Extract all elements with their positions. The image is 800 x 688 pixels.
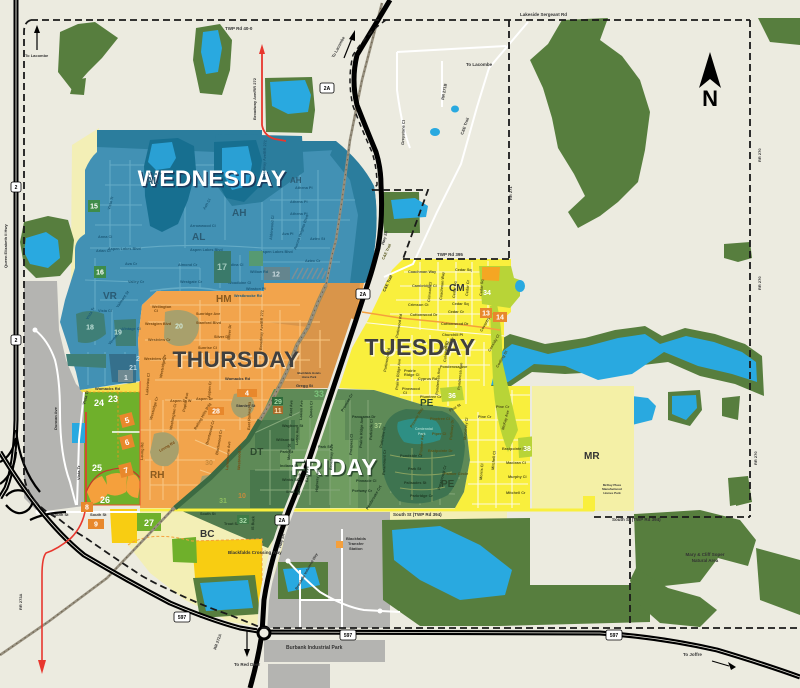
svg-text:Womacks Rd: Womacks Rd — [225, 376, 251, 381]
svg-text:Pine Cr: Pine Cr — [478, 415, 492, 419]
svg-text:15: 15 — [90, 204, 98, 211]
svg-text:AH: AH — [290, 176, 302, 185]
svg-text:Sunridge Ave: Sunridge Ave — [196, 312, 220, 316]
svg-text:Willow Rd: Willow Rd — [250, 270, 269, 274]
svg-text:Moore St: Moore St — [287, 443, 292, 460]
svg-text:Westbrooke Rd: Westbrooke Rd — [234, 294, 262, 298]
svg-text:Murphy Cl: Murphy Cl — [508, 475, 527, 479]
svg-text:Cyprus Rd: Cyprus Rd — [418, 377, 438, 381]
svg-text:34: 34 — [483, 290, 491, 297]
svg-text:Portway Cr: Portway Cr — [352, 489, 373, 493]
svg-text:18: 18 — [86, 325, 94, 332]
svg-text:24: 24 — [94, 398, 104, 408]
svg-text:Woodbine Cl: Woodbine Cl — [228, 281, 251, 285]
svg-text:Piper Cl: Piper Cl — [432, 432, 446, 436]
svg-text:To Red Deer: To Red Deer — [234, 662, 260, 667]
svg-text:10: 10 — [238, 493, 246, 500]
svg-text:HM: HM — [216, 294, 232, 305]
svg-text:Vista Cl: Vista Cl — [98, 309, 112, 313]
svg-text:Home Park: Home Park — [302, 375, 317, 379]
svg-text:AL: AL — [192, 232, 205, 243]
svg-text:2A: 2A — [324, 86, 331, 92]
svg-text:Indiana St: Indiana St — [280, 464, 299, 468]
svg-text:Womacks Rd: Womacks Rd — [95, 386, 121, 391]
svg-text:Churchill Pl: Churchill Pl — [442, 333, 463, 337]
svg-text:South St: South St — [200, 512, 216, 516]
svg-text:Stanford Blvd: Stanford Blvd — [196, 321, 222, 325]
svg-text:2A: 2A — [279, 518, 286, 524]
svg-text:DT: DT — [250, 447, 263, 458]
svg-text:Crimson Ct: Crimson Ct — [408, 303, 429, 307]
svg-text:2: 2 — [15, 338, 18, 344]
svg-text:14: 14 — [496, 315, 504, 322]
svg-text:4: 4 — [245, 391, 249, 398]
svg-text:Maclean Cl: Maclean Cl — [506, 461, 526, 465]
svg-text:597: 597 — [344, 633, 353, 639]
svg-text:Westview Cr: Westview Cr — [148, 338, 171, 342]
svg-text:Palisades St: Palisades St — [404, 481, 427, 485]
svg-text:Cedar Cr: Cedar Cr — [448, 310, 465, 314]
svg-text:To Joffre: To Joffre — [683, 652, 702, 657]
svg-text:32: 32 — [239, 518, 247, 525]
svg-text:597: 597 — [610, 633, 619, 639]
svg-text:South St: South St — [52, 512, 69, 517]
svg-text:16: 16 — [96, 270, 104, 277]
svg-text:8: 8 — [85, 505, 89, 512]
svg-text:Arrowwood Cl: Arrowwood Cl — [190, 224, 216, 228]
svg-text:25: 25 — [92, 463, 102, 473]
svg-text:Waghorn St: Waghorn St — [282, 424, 304, 428]
svg-text:AL: AL — [146, 176, 159, 187]
svg-text:East Ave: East Ave — [305, 466, 310, 482]
svg-text:1: 1 — [124, 375, 128, 382]
svg-text:Queen Elizabeth II Hwy: Queen Elizabeth II Hwy — [3, 223, 8, 268]
svg-text:AH: AH — [232, 208, 246, 219]
svg-text:Mitchell Cr: Mitchell Cr — [506, 491, 526, 495]
svg-text:Aspen Lakes Blvd: Aspen Lakes Blvd — [260, 250, 293, 254]
svg-text:2: 2 — [136, 356, 140, 363]
svg-text:19: 19 — [114, 330, 122, 337]
svg-text:RR 270: RR 270 — [757, 276, 762, 290]
svg-text:Ponderosa Ave: Ponderosa Ave — [440, 365, 467, 369]
svg-text:Leung Rd: Leung Rd — [140, 442, 145, 460]
svg-text:Cedar Sq: Cedar Sq — [452, 302, 469, 306]
svg-text:Vintage Cl: Vintage Cl — [122, 327, 141, 331]
svg-text:Coachman Way: Coachman Way — [408, 270, 437, 274]
svg-text:Almond Cr: Almond Cr — [178, 263, 198, 267]
svg-text:Westglen Blvd: Westglen Blvd — [145, 322, 172, 326]
svg-text:Cambridge Cl: Cambridge Cl — [412, 284, 437, 288]
svg-text:RR 271: RR 271 — [508, 186, 513, 200]
svg-text:Westgate Cr: Westgate Cr — [180, 280, 203, 284]
svg-text:Natural Area: Natural Area — [692, 558, 719, 563]
svg-text:597: 597 — [178, 615, 187, 621]
svg-text:PE: PE — [420, 398, 434, 409]
svg-text:37: 37 — [374, 423, 382, 430]
svg-text:2A: 2A — [360, 292, 367, 298]
svg-text:Park St: Park St — [408, 467, 422, 471]
svg-text:Stanley St: Stanley St — [236, 403, 256, 408]
svg-text:IS Buck: IS Buck — [251, 515, 256, 530]
svg-text:9: 9 — [94, 522, 98, 529]
svg-text:38: 38 — [523, 446, 531, 453]
svg-text:Gregg St: Gregg St — [296, 383, 314, 388]
svg-text:Cottonwood Dr: Cottonwood Dr — [441, 322, 469, 326]
svg-text:Anna Cl: Anna Cl — [98, 235, 112, 239]
svg-text:TWP Rd 40-0: TWP Rd 40-0 — [225, 26, 253, 31]
svg-text:Ridge Cl: Ridge Cl — [404, 373, 419, 377]
svg-text:23: 23 — [108, 394, 118, 404]
svg-text:Aztec Cr: Aztec Cr — [305, 259, 321, 263]
svg-text:Trout St: Trout St — [224, 522, 239, 526]
svg-text:TWP Rd 395: TWP Rd 395 — [437, 252, 463, 257]
svg-text:36: 36 — [448, 393, 456, 400]
svg-text:THURSDAY: THURSDAY — [173, 347, 300, 372]
svg-text:Station: Station — [349, 546, 363, 551]
svg-text:South St: South St — [90, 512, 107, 517]
svg-text:N: N — [702, 86, 718, 111]
svg-text:Vista Tr: Vista Tr — [148, 172, 162, 176]
svg-text:Winston Pl: Winston Pl — [246, 287, 266, 291]
svg-text:Cl: Cl — [403, 391, 407, 395]
svg-text:Lealan Ave: Lealan Ave — [299, 400, 304, 420]
svg-text:To Lacombe: To Lacombe — [466, 62, 493, 67]
svg-text:RH: RH — [150, 470, 164, 481]
svg-text:Blackfalds Crossing Way: Blackfalds Crossing Way — [228, 550, 282, 555]
svg-text:33: 33 — [314, 389, 324, 399]
svg-text:Eastpointe Dr: Eastpointe Dr — [428, 449, 453, 453]
svg-text:31: 31 — [219, 498, 227, 505]
svg-text:28: 28 — [212, 409, 220, 416]
svg-text:Prospect Cl: Prospect Cl — [349, 434, 354, 455]
svg-text:Queen Cr: Queen Cr — [309, 400, 314, 418]
svg-text:Willson St: Willson St — [276, 438, 295, 442]
svg-text:2: 2 — [15, 185, 18, 191]
svg-text:FRIDAY: FRIDAY — [291, 454, 378, 480]
svg-text:17: 17 — [217, 262, 227, 272]
svg-text:Vista Tr: Vista Tr — [76, 465, 81, 480]
svg-text:Duncan Ave: Duncan Ave — [53, 406, 58, 430]
svg-text:South St (TWP Rd 394): South St (TWP Rd 394) — [612, 517, 661, 522]
svg-text:Ava Cr: Ava Cr — [125, 262, 138, 266]
svg-text:Palmer Circle: Palmer Circle — [444, 472, 468, 476]
svg-text:26: 26 — [100, 495, 110, 505]
svg-text:Park: Park — [418, 432, 426, 436]
svg-text:21: 21 — [129, 365, 137, 372]
svg-text:Cottonwood Dr: Cottonwood Dr — [410, 313, 438, 317]
svg-text:Highway Ave: Highway Ave — [315, 469, 320, 492]
svg-text:Parkridge Cr: Parkridge Cr — [410, 494, 433, 498]
svg-text:Valley Cr: Valley Cr — [128, 280, 145, 284]
svg-text:RR 270: RR 270 — [753, 451, 758, 465]
svg-text:Schular Ave: Schular Ave — [297, 473, 302, 495]
svg-text:Cedar Sq: Cedar Sq — [455, 268, 472, 272]
svg-text:12: 12 — [272, 272, 280, 279]
svg-text:Lorne Ave: Lorne Ave — [295, 427, 300, 445]
svg-text:Aztec St: Aztec St — [310, 237, 326, 241]
svg-text:Pinnacle Cl: Pinnacle Cl — [356, 479, 376, 483]
svg-text:South St (TWP Rd 394): South St (TWP Rd 394) — [393, 512, 442, 517]
svg-text:Pine Cr: Pine Cr — [496, 405, 510, 409]
svg-text:Sunrise Cl: Sunrise Cl — [198, 346, 217, 350]
svg-text:Arlan Cl: Arlan Cl — [96, 249, 111, 253]
svg-text:20: 20 — [175, 324, 183, 331]
svg-text:Ava Pl: Ava Pl — [282, 232, 293, 236]
svg-text:To Lacombe: To Lacombe — [25, 53, 49, 58]
svg-text:Homes Park: Homes Park — [603, 491, 621, 495]
svg-text:Winks St: Winks St — [282, 478, 299, 482]
svg-text:VR: VR — [103, 291, 118, 302]
svg-text:BC: BC — [200, 529, 214, 540]
svg-text:27: 27 — [144, 518, 154, 528]
svg-text:Aspen Dr W: Aspen Dr W — [170, 399, 192, 403]
svg-text:Centennial: Centennial — [415, 427, 433, 431]
svg-text:MR: MR — [584, 451, 600, 462]
svg-text:Parkside Cl: Parkside Cl — [369, 419, 374, 440]
svg-text:Pinetree Cl: Pinetree Cl — [430, 417, 450, 421]
svg-text:RR 273A: RR 273A — [18, 593, 23, 610]
svg-text:11: 11 — [274, 408, 282, 415]
svg-text:Athena Pl: Athena Pl — [295, 186, 313, 190]
svg-text:Greystone Cl: Greystone Cl — [400, 120, 406, 145]
svg-text:Aspen Lakes Blvd: Aspen Lakes Blvd — [108, 247, 141, 251]
svg-text:30: 30 — [205, 460, 213, 467]
svg-text:Mary & Cliff Soper: Mary & Cliff Soper — [685, 552, 724, 557]
svg-text:Cl: Cl — [154, 309, 158, 313]
svg-text:East Ave: East Ave — [289, 400, 294, 416]
svg-text:29: 29 — [274, 399, 282, 406]
svg-text:13: 13 — [482, 311, 490, 318]
svg-text:Broadway Ave/RR 272: Broadway Ave/RR 272 — [252, 77, 257, 120]
svg-text:Pondside Cr: Pondside Cr — [400, 454, 423, 458]
svg-text:Lakeside Sergeant Rd: Lakeside Sergeant Rd — [520, 12, 567, 17]
svg-text:TUESDAY: TUESDAY — [364, 334, 475, 360]
svg-text:RR 270: RR 270 — [757, 148, 762, 162]
svg-text:Athens Pl: Athens Pl — [290, 200, 308, 204]
svg-text:Burbank Industrial Park: Burbank Industrial Park — [286, 645, 343, 651]
